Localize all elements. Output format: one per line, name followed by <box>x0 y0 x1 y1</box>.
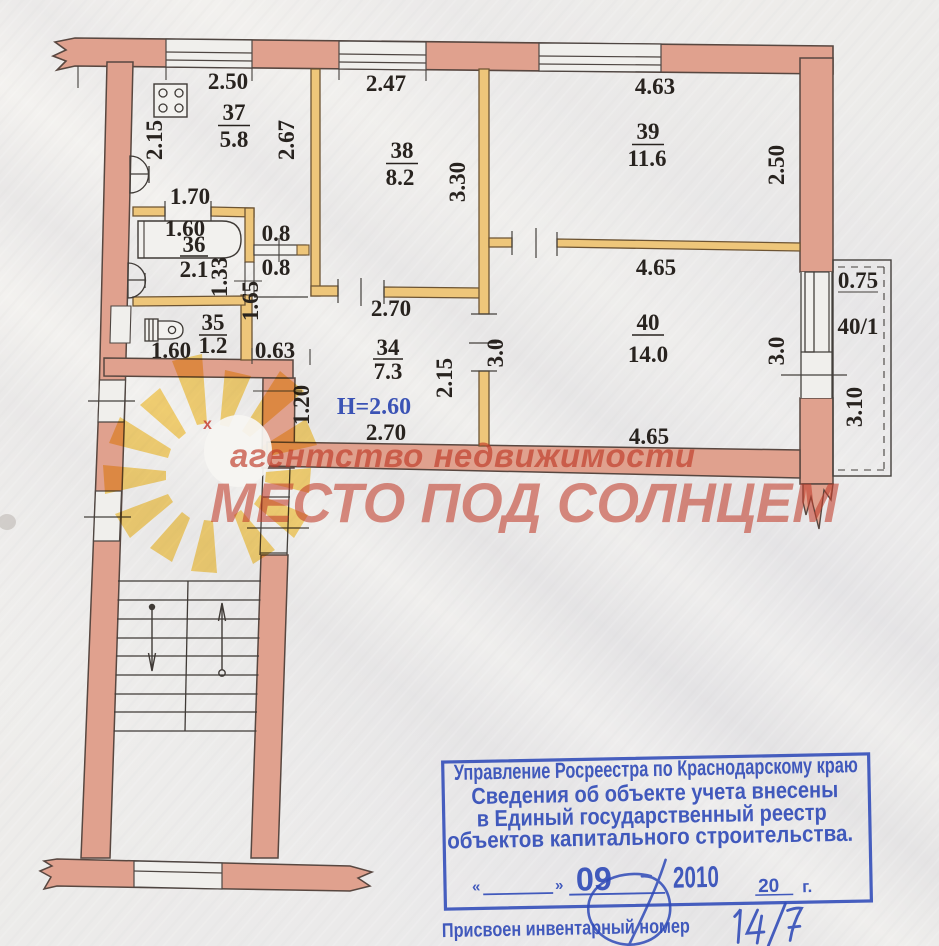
svg-text:2.15: 2.15 <box>432 358 457 398</box>
svg-text:39: 39 <box>637 119 660 144</box>
svg-text:40: 40 <box>637 310 660 335</box>
svg-text:1.65: 1.65 <box>238 281 263 321</box>
svg-text:«: « <box>472 878 481 895</box>
svg-text:H=2.60: H=2.60 <box>337 394 411 420</box>
svg-text:0.8: 0.8 <box>262 221 291 246</box>
svg-text:2.50: 2.50 <box>208 69 248 94</box>
svg-text:»: » <box>555 877 564 894</box>
svg-text:2010: 2010 <box>673 861 720 895</box>
svg-text:14.0: 14.0 <box>628 342 668 367</box>
svg-text:3.0: 3.0 <box>483 339 508 368</box>
svg-text:0.8: 0.8 <box>262 255 291 280</box>
svg-text:34: 34 <box>377 335 401 360</box>
svg-text:38: 38 <box>391 138 414 163</box>
svg-text:2.47: 2.47 <box>366 71 406 96</box>
svg-text:МЕСТО ПОД СОЛНЦЕМ: МЕСТО ПОД СОЛНЦЕМ <box>210 471 839 534</box>
svg-text:8.2: 8.2 <box>386 165 415 190</box>
svg-text:0.75: 0.75 <box>838 268 878 293</box>
svg-text:4.63: 4.63 <box>635 74 675 99</box>
svg-text:0.63: 0.63 <box>255 338 295 363</box>
svg-text:11.6: 11.6 <box>628 146 667 171</box>
svg-text:36: 36 <box>183 232 206 257</box>
svg-text:2.1: 2.1 <box>180 257 209 282</box>
svg-text:2.50: 2.50 <box>764 145 789 185</box>
svg-text:3.0: 3.0 <box>764 337 789 366</box>
svg-text:37: 37 <box>223 100 246 125</box>
svg-text:2.70: 2.70 <box>371 296 411 321</box>
svg-text:1.2: 1.2 <box>199 333 228 358</box>
svg-text:x: x <box>203 416 212 433</box>
svg-text:г.: г. <box>802 877 812 896</box>
svg-text:1.33: 1.33 <box>207 257 232 297</box>
svg-text:2.15: 2.15 <box>142 120 167 160</box>
svg-text:20: 20 <box>758 876 780 897</box>
svg-text:40/1: 40/1 <box>838 314 879 339</box>
svg-text:3.10: 3.10 <box>842 387 867 427</box>
svg-text:7.3: 7.3 <box>374 359 403 384</box>
svg-text:1.70: 1.70 <box>170 184 210 209</box>
svg-text:35: 35 <box>202 310 225 335</box>
svg-text:4.65: 4.65 <box>636 255 676 280</box>
svg-text:2.67: 2.67 <box>274 120 299 160</box>
svg-text:агентство недвижимости: агентство недвижимости <box>230 437 696 474</box>
svg-text:3.30: 3.30 <box>445 162 470 202</box>
svg-text:5.8: 5.8 <box>220 127 249 152</box>
